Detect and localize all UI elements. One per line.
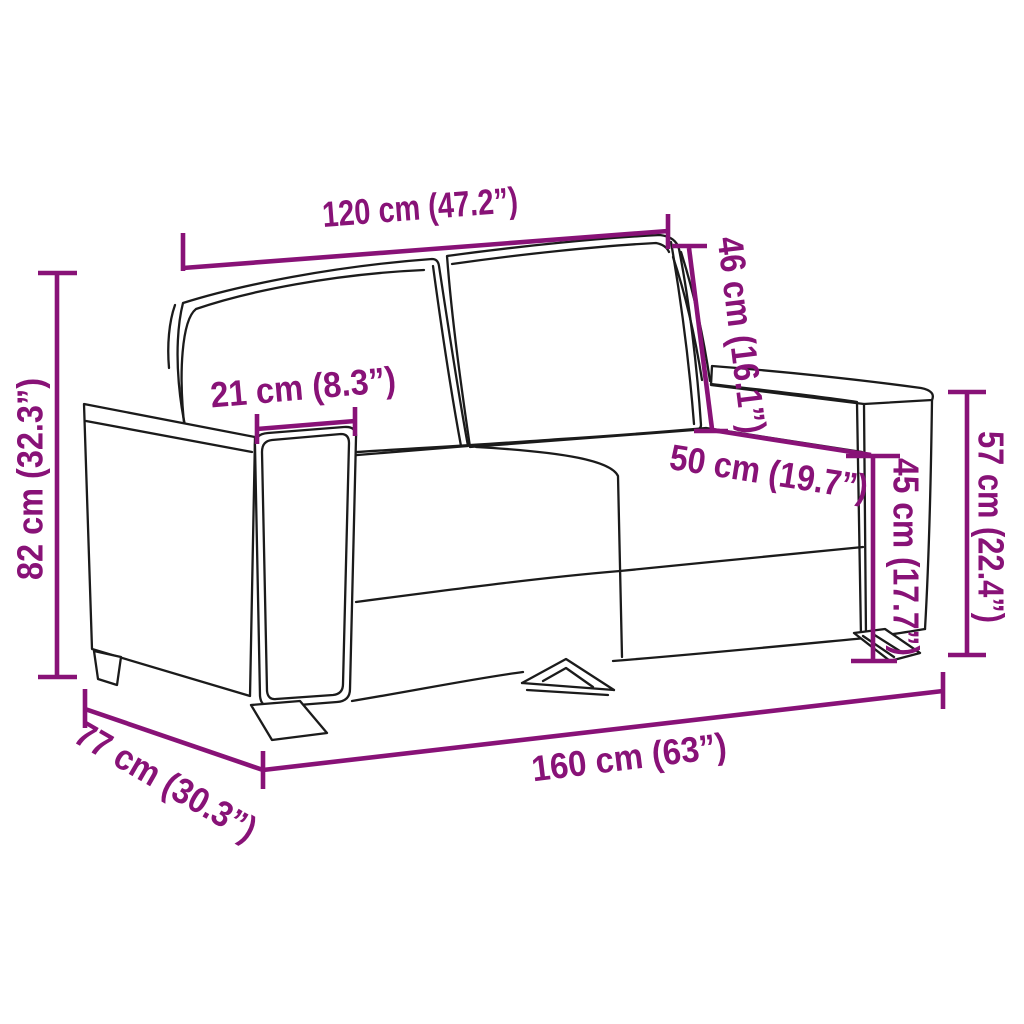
right-armrest-inner-edge bbox=[864, 404, 866, 638]
sofa-dimension-drawing: 120 cm (47.2”) 46 cm (16.1”) 21 cm (8.3”… bbox=[0, 0, 1024, 1024]
dimension-label: 50 cm (19.7”) bbox=[667, 436, 871, 508]
seat-center-split bbox=[476, 447, 622, 657]
dimension-label: 120 cm (47.2”) bbox=[321, 179, 520, 235]
sofa-back-cushion-right bbox=[447, 235, 701, 447]
leg-middle-sled bbox=[522, 659, 614, 695]
dimension-label: 82 cm (32.3”) bbox=[10, 378, 51, 580]
dimension-label: 46 cm (16.1”) bbox=[710, 234, 775, 436]
dimension-overall-height: 82 cm (32.3”) bbox=[10, 273, 78, 677]
seat-front-seam bbox=[356, 547, 863, 602]
dimension-label: 57 cm (22.4”) bbox=[971, 431, 1012, 623]
dimension-label: 77 cm (30.3”) bbox=[68, 712, 264, 849]
leg-left-outer bbox=[94, 651, 121, 685]
leg-front-left bbox=[251, 701, 327, 740]
dimension-armrest-height: 57 cm (22.4”) bbox=[948, 392, 1012, 655]
dimension-overall-depth: 77 cm (30.3”) bbox=[68, 689, 264, 850]
dimension-label: 45 cm (17.7”) bbox=[886, 458, 927, 656]
base-bottom-right bbox=[613, 638, 866, 661]
right-armrest-inner-piping bbox=[857, 403, 861, 637]
back-corner-piping bbox=[168, 305, 175, 368]
left-armrest-front-panel bbox=[255, 427, 356, 707]
base-bottom-left bbox=[352, 672, 523, 701]
dimension-diagram: 120 cm (47.2”) 46 cm (16.1”) 21 cm (8.3”… bbox=[0, 0, 1024, 1024]
